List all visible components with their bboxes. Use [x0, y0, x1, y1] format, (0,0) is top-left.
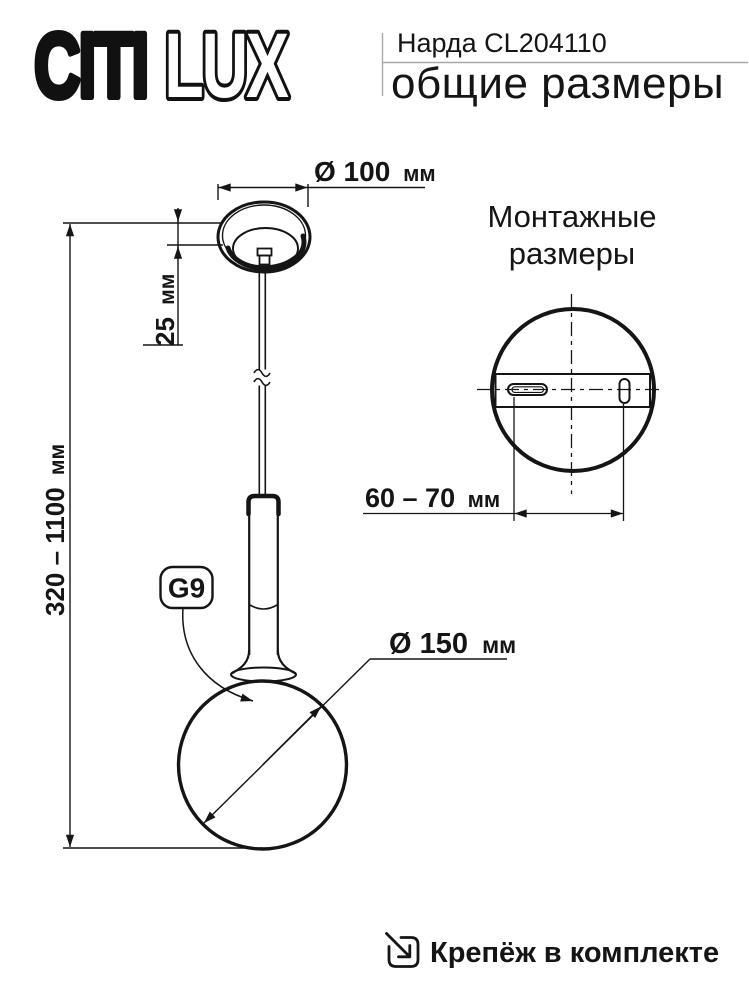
mounting-title-line2: размеры	[509, 236, 635, 271]
page: CITI LUX Нарда CL204110 общие размеры	[0, 0, 749, 1000]
lamp-holder	[231, 496, 296, 682]
wire-break-icon	[254, 379, 270, 386]
socket-callout: G9	[161, 567, 254, 701]
socket-leader-arrow	[183, 608, 253, 701]
canopy-drawing	[218, 202, 310, 272]
glass-edge	[250, 605, 277, 609]
logo-solid-part: CITI	[34, 14, 147, 117]
wire-break-icon	[254, 370, 270, 377]
canopy-height-label: 25 мм	[150, 274, 180, 346]
socket-label: G9	[168, 573, 205, 604]
svg-text:CITI LUX: CITI LUX	[34, 14, 289, 117]
included-hardware-icon	[387, 934, 419, 967]
mounting-holes-label: 60 – 70 мм	[365, 483, 500, 513]
canopy-diameter-label: Ø 100 мм	[314, 156, 436, 187]
header: CITI LUX Нарда CL204110 общие размеры	[34, 14, 748, 117]
product-name: Нарда CL204110	[397, 28, 607, 58]
wire-connector	[258, 249, 272, 256]
mounting-plate-drawing	[477, 294, 663, 494]
sphere-diameter-label: Ø 150 мм	[389, 628, 516, 660]
citilux-logo: CITI LUX	[34, 14, 289, 117]
footer: Крепёж в комплекте	[387, 934, 720, 970]
canopy-height-dimension	[63, 208, 223, 345]
suspension-wire	[254, 264, 270, 494]
total-height-label: 320 – 1100 мм	[40, 444, 70, 616]
footer-note: Крепёж в комплекте	[430, 937, 719, 969]
mounting-slot-right	[620, 379, 630, 403]
mounting-view: Монтажные размеры 60 – 70 мм	[363, 199, 663, 521]
logo-outline-part: LUX	[164, 14, 289, 117]
page-subtitle: общие размеры	[391, 59, 724, 108]
dimension-drawing: CITI LUX Нарда CL204110 общие размеры	[0, 0, 749, 1000]
mounting-title-line1: Монтажные	[487, 199, 656, 234]
